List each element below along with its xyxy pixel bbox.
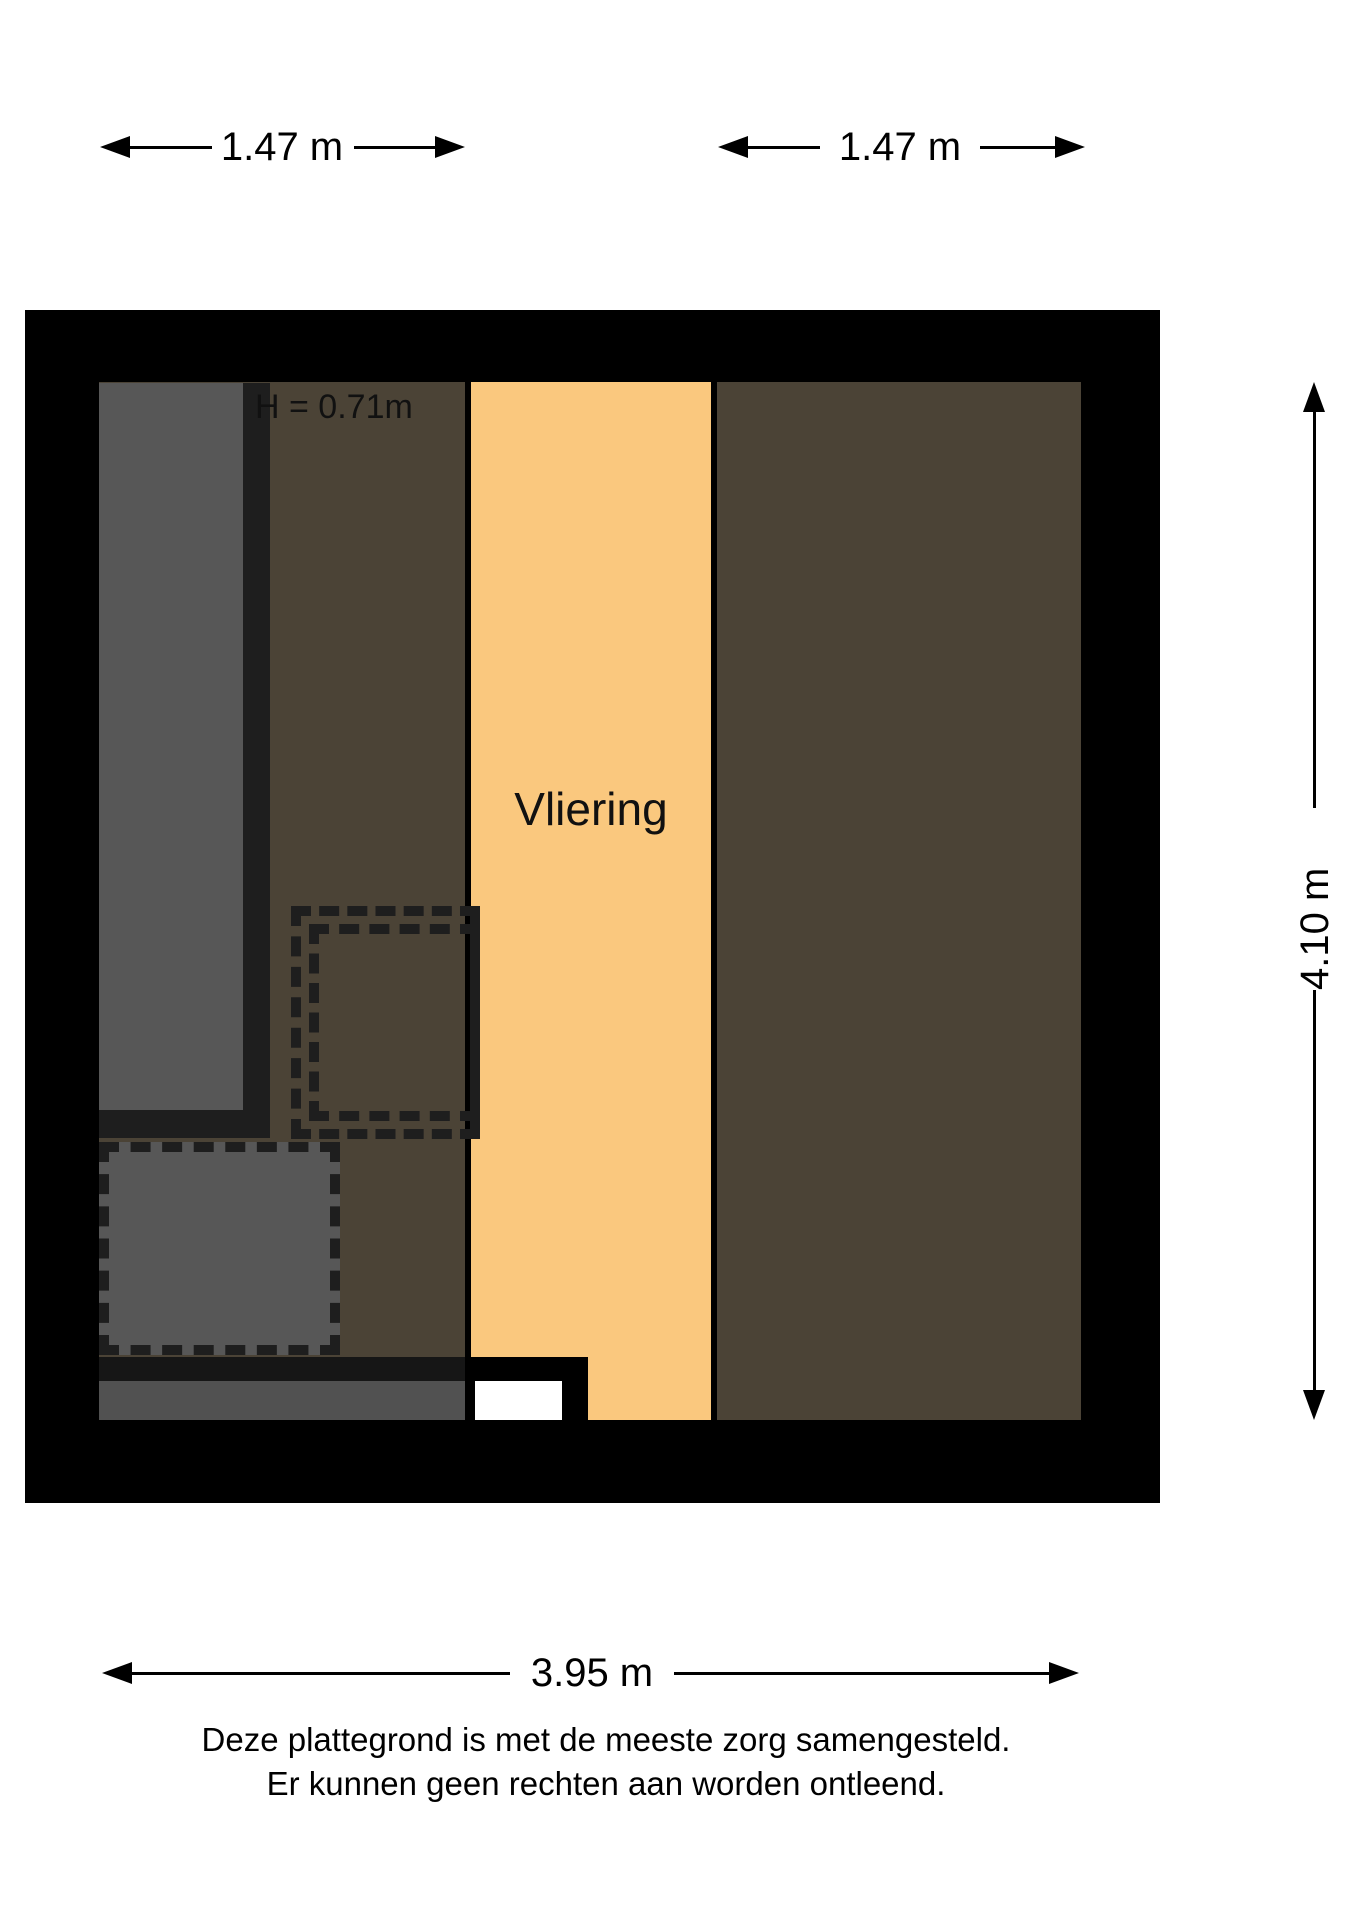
disclaimer-line-2: Er kunnen geen rechten aan worden ontlee… [0,1762,1212,1806]
dim-arrowhead-down-icon [1303,1390,1325,1420]
dim-right-label-text: 4.10 m [1293,815,1338,990]
loft-floor-area [471,382,711,1420]
dim-line-segment [1313,990,1316,1394]
dim-top-right-label: 1.47 m [830,125,970,170]
stairwell-partition-bottom [99,1110,270,1138]
dim-line-segment [744,146,820,149]
entry-opening [475,1381,562,1420]
lower-landing-strip [99,1381,469,1420]
ceiling-height-label: H = 0.71m [255,388,555,427]
dim-line-segment [126,146,212,149]
dim-arrowhead-right-icon [1049,1662,1079,1684]
floorplan-page: 1.47 m 1.47 m H = 0.71m Vliering 4.10 m … [0,0,1358,1920]
dim-line-segment [980,146,1056,149]
loft-hatch-dashed-area [99,1142,340,1355]
stairwell-partition-right [243,383,270,1138]
roof-opening-dashed-outline-inner [309,924,480,1121]
dim-line-segment [674,1672,1054,1675]
loft-edge-line-right [711,382,717,1420]
dim-line-segment [128,1672,510,1675]
stairwell [99,383,243,1110]
dim-line-segment [354,146,439,149]
dim-arrowhead-right-icon [435,136,465,158]
room-name-label: Vliering [471,782,711,836]
dim-right-label: 4.10 m [1278,812,1338,987]
disclaimer-line-1: Deze plattegrond is met de meeste zorg s… [0,1718,1212,1762]
dim-bottom-label: 3.95 m [512,1651,672,1696]
dim-arrowhead-right-icon [1055,136,1085,158]
dim-line-segment [1313,408,1316,808]
dim-top-left-label: 1.47 m [212,125,352,170]
disclaimer: Deze plattegrond is met de meeste zorg s… [0,1718,1212,1806]
